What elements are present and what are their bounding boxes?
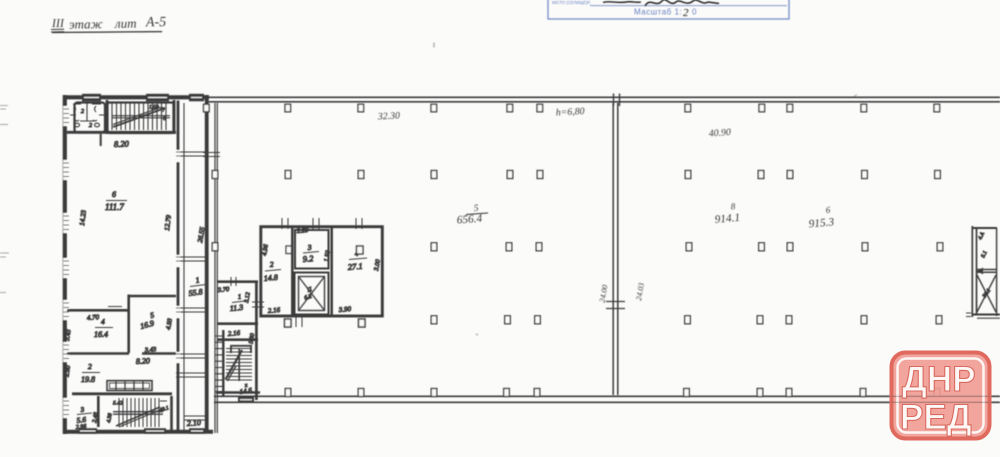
svg-text:656.4: 656.4 — [456, 213, 483, 227]
svg-text:27.1: 27.1 — [347, 261, 363, 272]
svg-text:МІСТО (СЕЛИЩЕ)Р,: МІСТО (СЕЛИЩЕ)Р, — [552, 0, 591, 5]
svg-text:11.3: 11.3 — [229, 303, 243, 313]
svg-text:111.7: 111.7 — [105, 202, 124, 212]
svg-text:лит: лит — [114, 16, 137, 31]
svg-text:9.2: 9.2 — [302, 253, 314, 264]
svg-text:915.3: 915.3 — [808, 216, 835, 230]
svg-text:14.8: 14.8 — [263, 273, 278, 283]
svg-text:1,50: 1,50 — [149, 105, 159, 111]
svg-text:ДНР: ДНР — [902, 360, 976, 399]
svg-text:4.70: 4.70 — [87, 313, 100, 322]
svg-text:РЕД: РЕД — [900, 398, 972, 437]
svg-text:2.20: 2.20 — [297, 227, 310, 235]
svg-text:3.90: 3.90 — [337, 305, 351, 314]
svg-text:2: 2 — [81, 109, 84, 115]
svg-text:32.30: 32.30 — [377, 110, 401, 122]
svg-text:1: 1 — [237, 293, 241, 301]
svg-text:19.8: 19.8 — [81, 375, 95, 384]
svg-text:8.20: 8.20 — [114, 138, 130, 149]
svg-text:2: 2 — [88, 362, 92, 371]
svg-text:4: 4 — [101, 317, 105, 326]
svg-text:h=6,80: h=6,80 — [556, 106, 585, 118]
svg-text:6: 6 — [112, 190, 116, 199]
svg-text:3.70: 3.70 — [217, 286, 231, 294]
svg-text:III: III — [51, 16, 65, 30]
svg-text:2: 2 — [683, 7, 689, 19]
svg-text:Масштаб 1:: Масштаб 1: — [634, 8, 682, 17]
svg-text:40.90: 40.90 — [708, 127, 731, 140]
svg-text:914.1: 914.1 — [714, 212, 740, 226]
svg-text:2.16: 2.16 — [227, 329, 240, 338]
svg-text:16.4: 16.4 — [94, 330, 108, 339]
svg-text:8.20: 8.20 — [136, 356, 150, 366]
svg-text:этаж: этаж — [69, 16, 103, 32]
svg-text:6: 6 — [163, 116, 166, 122]
svg-text:2: 2 — [89, 123, 92, 129]
svg-text:2.16: 2.16 — [267, 306, 280, 315]
svg-text:2.10: 2.10 — [187, 418, 202, 428]
svg-text:5.42: 5.42 — [113, 400, 123, 407]
svg-text:А-5: А-5 — [145, 15, 166, 30]
svg-text:0: 0 — [692, 8, 697, 17]
